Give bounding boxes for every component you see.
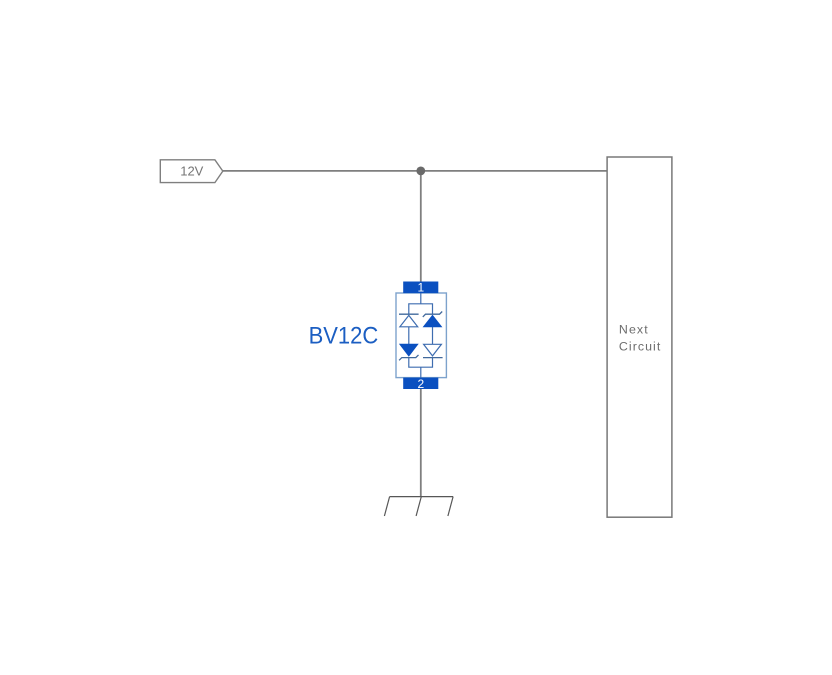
svg-text:Circuit: Circuit [619,339,661,353]
svg-text:BV12C: BV12C [309,324,379,350]
svg-text:12V: 12V [180,164,203,179]
svg-text:1: 1 [417,281,424,295]
svg-text:Next: Next [619,323,649,337]
svg-text:2: 2 [417,377,424,391]
